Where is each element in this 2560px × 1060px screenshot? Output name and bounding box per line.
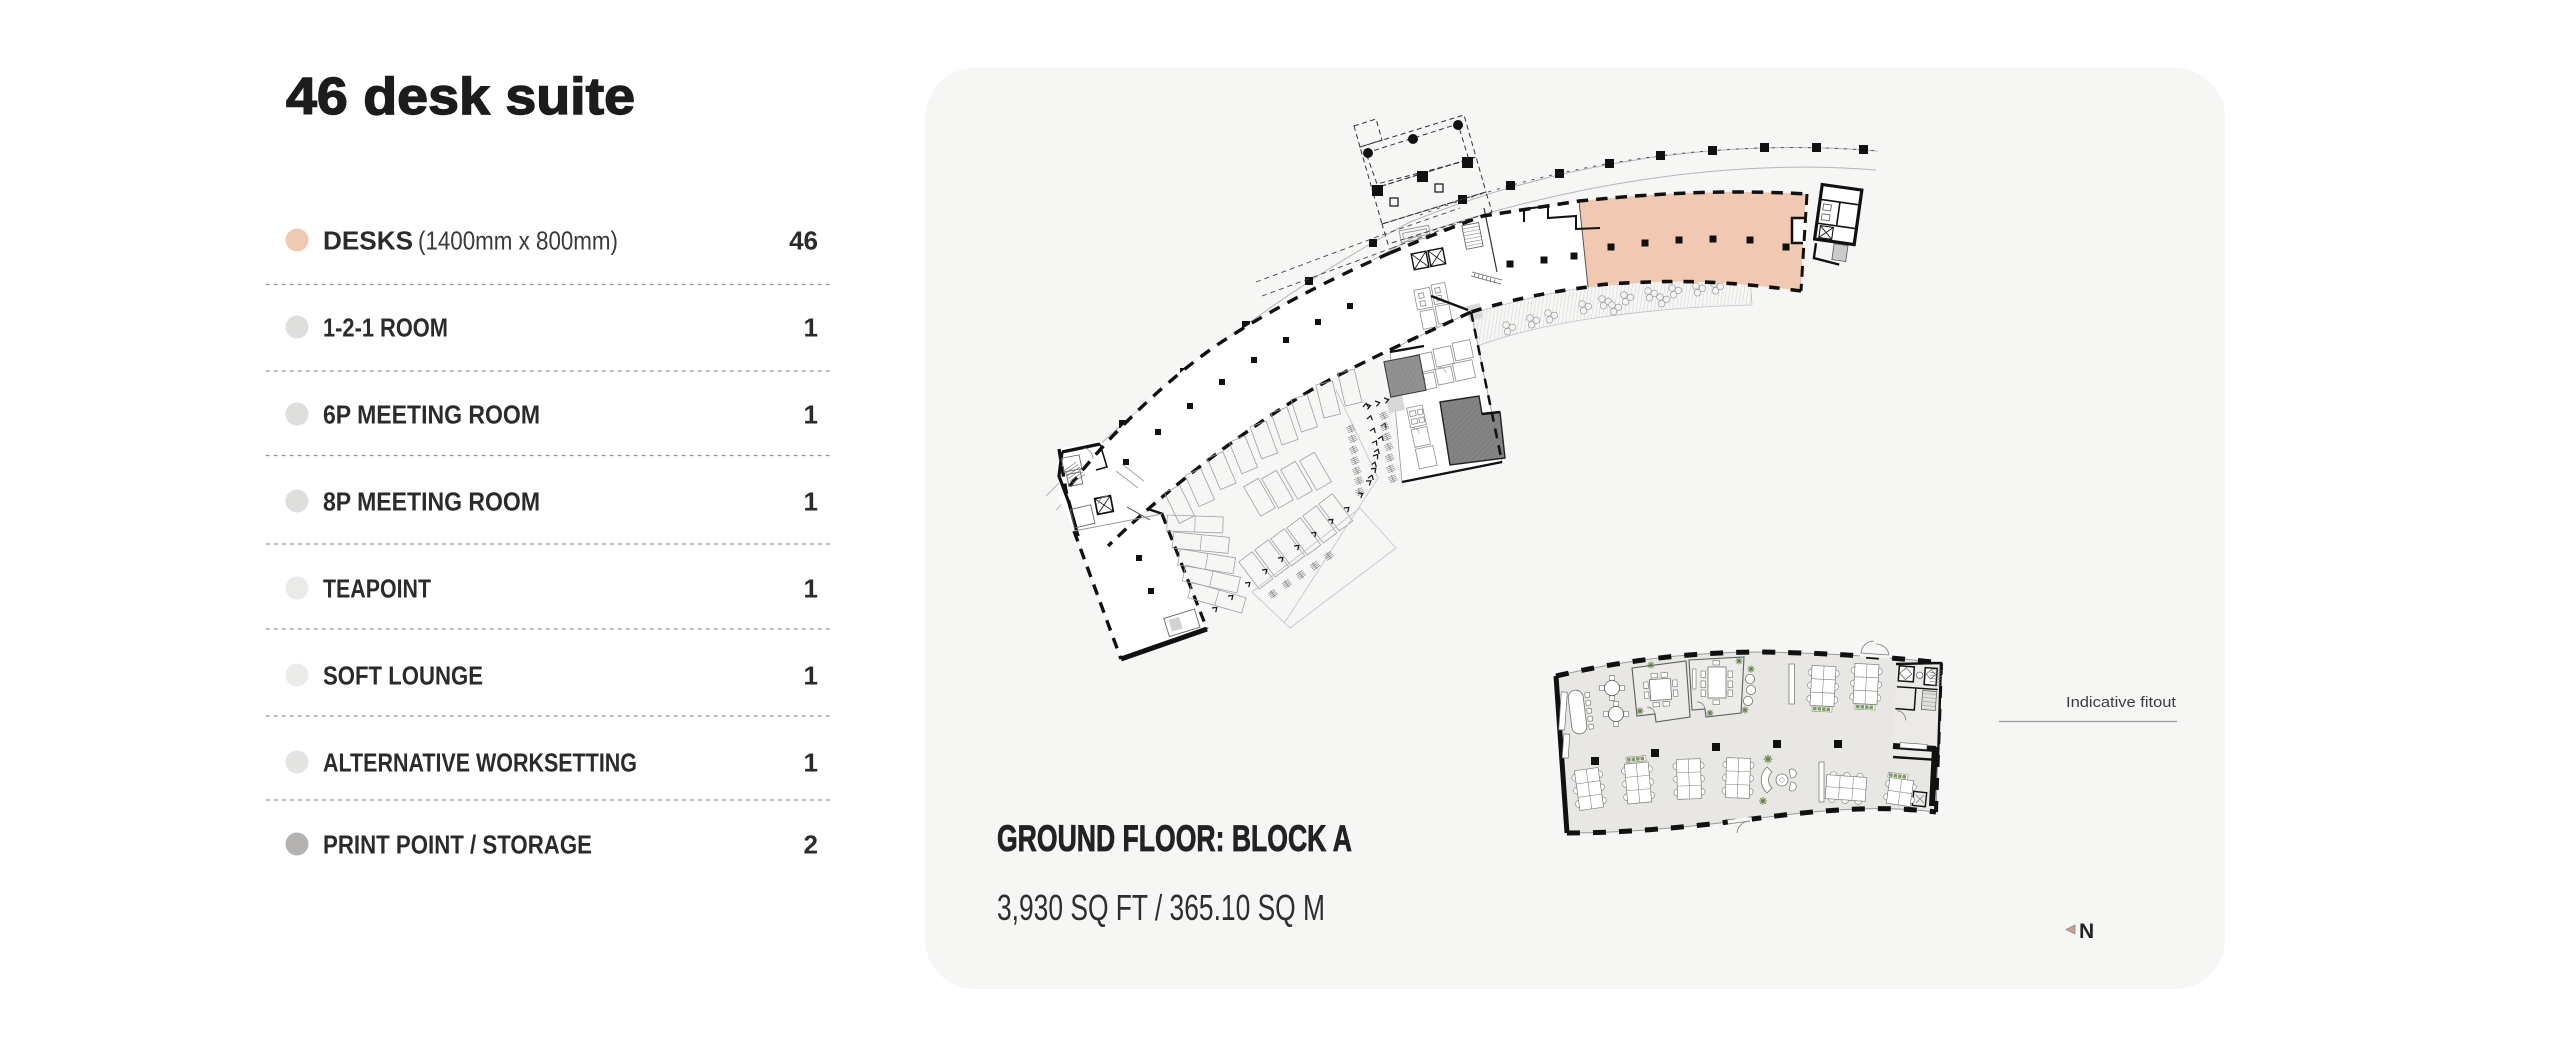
svg-text:6P MEETING ROOM: 6P MEETING ROOM — [323, 400, 540, 430]
svg-text:8P MEETING ROOM: 8P MEETING ROOM — [323, 487, 540, 517]
svg-text:46 desk suite: 46 desk suite — [286, 68, 635, 126]
svg-text:1: 1 — [804, 574, 818, 604]
svg-text:(1400mm x 800mm): (1400mm x 800mm) — [418, 226, 618, 256]
svg-text:1: 1 — [804, 400, 818, 430]
svg-text:1: 1 — [804, 313, 818, 343]
svg-text:N: N — [2079, 920, 2095, 943]
svg-text:46: 46 — [789, 226, 818, 256]
svg-text:SOFT LOUNGE: SOFT LOUNGE — [323, 661, 483, 691]
svg-text:3,930 SQ FT / 365.10 SQ M: 3,930 SQ FT / 365.10 SQ M — [997, 887, 1325, 928]
svg-text:1: 1 — [804, 661, 818, 691]
svg-text:DESKS: DESKS — [323, 226, 413, 256]
svg-text:Indicative fitout: Indicative fitout — [2066, 695, 2176, 711]
svg-text:1-2-1 ROOM: 1-2-1 ROOM — [323, 313, 448, 343]
svg-text:GROUND FLOOR: BLOCK A: GROUND FLOOR: BLOCK A — [997, 818, 1352, 859]
svg-text:2: 2 — [804, 830, 818, 860]
svg-text:ALTERNATIVE WORKSETTING: ALTERNATIVE WORKSETTING — [323, 748, 637, 778]
svg-text:1: 1 — [804, 748, 818, 778]
svg-text:PRINT POINT / STORAGE: PRINT POINT / STORAGE — [323, 830, 592, 860]
svg-text:TEAPOINT: TEAPOINT — [323, 574, 431, 604]
svg-text:1: 1 — [804, 487, 818, 517]
